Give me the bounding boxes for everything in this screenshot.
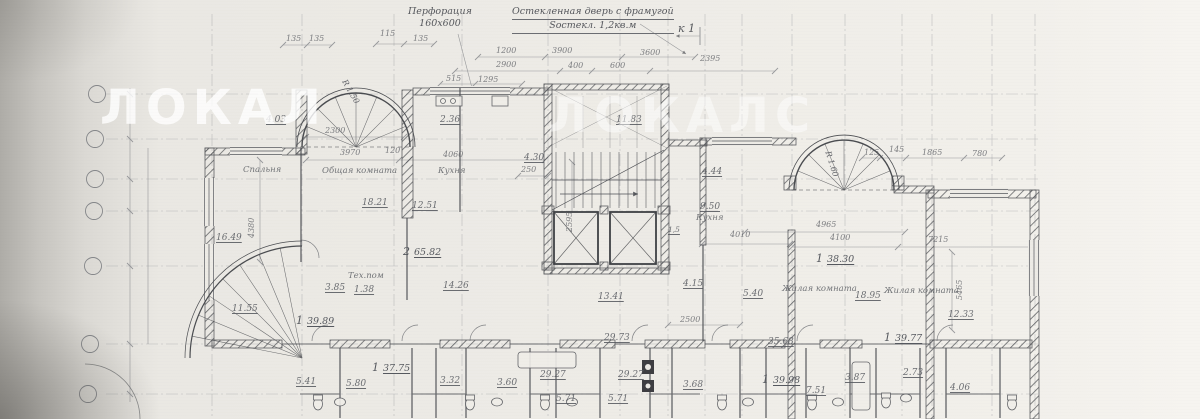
apartment-label: 1 38.30 <box>816 253 854 265</box>
dimension-label: 1865 <box>922 149 942 157</box>
apartment-label: 2 65.82 <box>403 246 441 258</box>
apartment-area: 65.82 <box>414 248 441 258</box>
area-label: 9.50 <box>700 203 720 212</box>
perforation-note-line1: Перфорация <box>408 6 472 18</box>
area-label: 13.41 <box>598 293 624 302</box>
dimension-label: 515 <box>446 75 461 83</box>
area-label: 1,5 <box>668 226 680 234</box>
dimension-label: 4380 <box>248 218 256 238</box>
dimension-label: 2500 <box>680 316 700 324</box>
dimension-label: 4010 <box>730 231 750 239</box>
apartment-number: 1 <box>762 374 769 385</box>
dimension-label: 400 <box>568 62 583 70</box>
dimension-label: 135 <box>413 35 428 43</box>
room-label-living-room-1: Жилая комната <box>782 285 857 294</box>
dimension-label: 125 <box>864 149 879 157</box>
area-label: 5.41 <box>296 378 316 387</box>
dimension-label: 600 <box>610 62 625 70</box>
area-label: 4.03 <box>266 116 286 125</box>
apartment-area: 39.98 <box>773 376 800 386</box>
dimension-label: 1295 <box>478 76 498 84</box>
apartment-number: 2 <box>403 246 410 257</box>
dimension-label: 120 <box>385 147 400 155</box>
area-label: 5.71 <box>608 395 628 404</box>
area-label: 29.27 <box>540 371 566 380</box>
dimension-label: 2300 <box>325 127 345 135</box>
apartment-area: 38.30 <box>827 255 854 265</box>
area-label: 4.44 <box>702 168 722 177</box>
dimension-label: 2900 <box>496 61 516 69</box>
area-label: 18.95 <box>855 292 881 301</box>
room-label-living-room-2: Жилая комната <box>884 287 959 296</box>
area-label: 18.21 <box>362 199 388 208</box>
dimension-label: 780 <box>972 150 987 158</box>
area-label: 29.73 <box>604 334 630 343</box>
area-label: 35.68 <box>768 338 794 347</box>
area-label: 3.68 <box>683 381 703 390</box>
dimension-label: 4965 <box>816 221 836 229</box>
area-label: 2.73 <box>903 369 923 378</box>
scanned-floorplan-page: Перфорация 160х600 Остекленная дверь с ф… <box>0 0 1200 419</box>
room-label-kitchen-2: Кухня <box>696 214 724 223</box>
apartment-number: 1 <box>296 315 303 326</box>
area-label: 5.80 <box>346 380 366 389</box>
apartment-label: 1 39.77 <box>884 332 922 344</box>
area-label: 12.51 <box>412 202 438 211</box>
room-label-kitchen-1: Кухня <box>438 167 466 176</box>
area-label: 29.27 <box>618 371 644 380</box>
area-label: 7.51 <box>806 387 826 396</box>
area-label: 16.49 <box>216 234 242 243</box>
dimension-label: 145 <box>889 146 904 154</box>
glazed-door-note: Остекленная дверь с фрамугой Sостекл. 1,… <box>512 6 674 34</box>
axis-bubbles <box>80 86 106 403</box>
area-label: 5.40 <box>743 290 763 299</box>
dimension-label: 4060 <box>443 151 463 159</box>
apartment-label: 1 39.89 <box>296 315 334 327</box>
area-label: 14.26 <box>443 282 469 291</box>
curved-balcony-fan <box>85 241 302 419</box>
dimension-label: 3970 <box>340 149 360 157</box>
apartment-label: 1 37.75 <box>372 362 410 374</box>
dimension-label: 7215 <box>928 236 948 244</box>
dimension-label: 3600 <box>640 49 660 57</box>
area-label: 3.32 <box>440 377 460 386</box>
area-label: 3.60 <box>497 379 517 388</box>
dimension-label: 135 <box>286 35 301 43</box>
area-label: 4.15 <box>683 280 703 289</box>
apartment-area: 37.75 <box>383 364 410 374</box>
area-label: 12.33 <box>948 311 974 320</box>
perforation-note: Перфорация 160х600 <box>408 6 472 30</box>
dimension-label: 1200 <box>496 47 516 55</box>
dimension-label: 115 <box>380 30 395 38</box>
area-label: 4.30 <box>524 154 544 163</box>
apartment-number: 1 <box>372 362 379 373</box>
dimension-label: 3900 <box>552 47 572 55</box>
area-label: 3.85 <box>325 284 345 293</box>
stair-core <box>546 86 667 210</box>
perforation-note-line2: 160х600 <box>408 18 472 30</box>
glazed-door-note-line1: Остекленная дверь с фрамугой <box>512 6 674 20</box>
dimension-label: 4100 <box>830 234 850 242</box>
apartment-number: 1 <box>816 253 823 264</box>
apartment-label: 1 39.98 <box>762 374 800 386</box>
area-label: 5.71 <box>556 395 576 404</box>
room-label-tech-room: Тех.пом <box>348 272 384 281</box>
area-label: 11.55 <box>232 305 258 314</box>
room-label-common-room: Общая комната <box>322 167 397 176</box>
area-label: 1.38 <box>354 286 374 295</box>
dimension-label: 250 <box>521 166 536 174</box>
dimension-label: 2595 <box>566 212 574 232</box>
section-marker-k1: к 1 <box>678 22 695 36</box>
glazed-door-note-line2: Sостекл. 1,2кв.м <box>512 20 674 34</box>
room-label-bedroom: Спальня <box>243 166 281 175</box>
dimension-label: 5465 <box>956 280 964 300</box>
area-label: 11.83 <box>616 116 642 125</box>
floorplan-drawing <box>0 0 1200 419</box>
apartment-area: 39.89 <box>307 317 334 327</box>
dimension-label: 135 <box>309 35 324 43</box>
area-label: 2.36 <box>440 116 460 125</box>
area-label: 3.87 <box>845 374 865 383</box>
apartment-number: 1 <box>884 332 891 343</box>
apartment-area: 39.77 <box>895 334 922 344</box>
bay-window-right <box>789 135 899 190</box>
dimension-label: 2395 <box>700 55 720 63</box>
area-label: 4.06 <box>950 384 970 393</box>
